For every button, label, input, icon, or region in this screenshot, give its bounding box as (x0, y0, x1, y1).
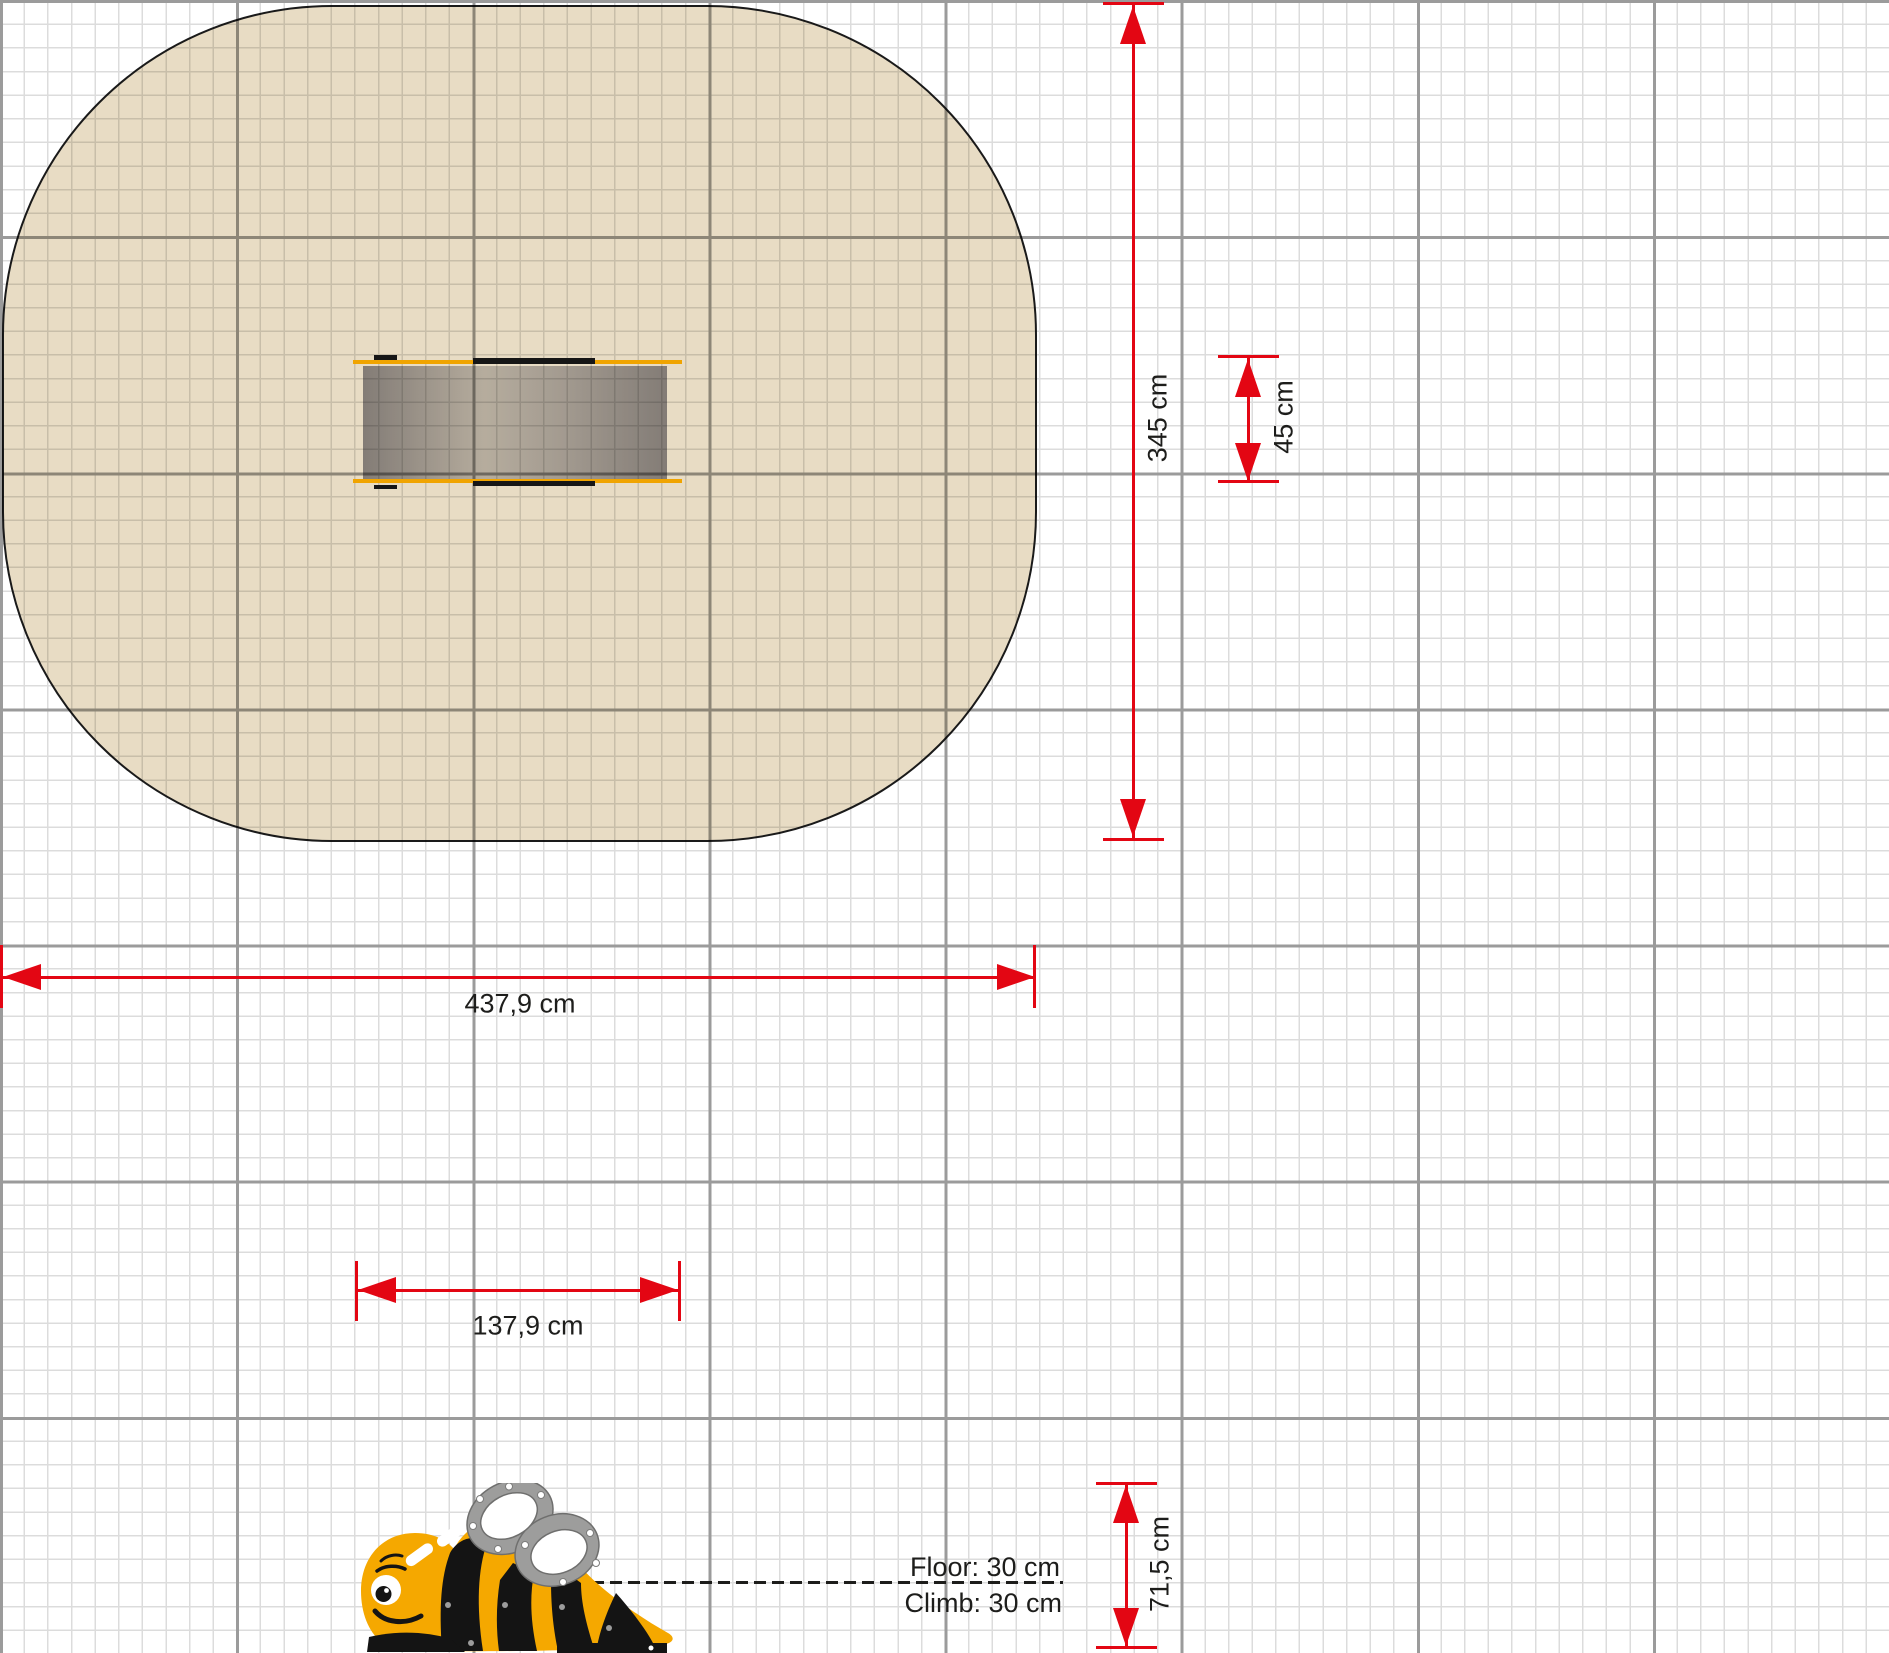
arrowhead-down-icon (1235, 443, 1261, 481)
technical-drawing-canvas: 345 cm 45 cm 437,9 cm 137,9 cm 71,5 cm (0, 0, 1889, 1653)
dimension-line (357, 1289, 679, 1292)
floor-annotation: Floor: 30 cm (860, 1552, 1060, 1583)
arrowhead-right-icon (997, 964, 1035, 990)
bee-bolt-light (649, 1646, 654, 1651)
arrowhead-up-icon (1235, 359, 1261, 397)
arrowhead-left-icon (358, 1277, 396, 1303)
equipment-tab-top (374, 355, 397, 360)
bee-eye-highlight (384, 1588, 389, 1593)
arrowhead-down-icon (1113, 1608, 1139, 1646)
dimension-label: 437,9 cm (464, 989, 575, 1020)
arrowhead-left-icon (3, 964, 41, 990)
dimension-tick (1218, 355, 1279, 358)
equipment-climb-mat (363, 366, 667, 479)
equipment-stripe-bottom (473, 481, 595, 486)
equipment-stripe-top (473, 358, 595, 364)
dimension-tick (1096, 1646, 1157, 1649)
arrowhead-down-icon (1120, 799, 1146, 837)
dimension-label: 45 cm (1269, 380, 1300, 454)
dimension-label: 71,5 cm (1145, 1516, 1176, 1612)
bee-climber-illustration (353, 1483, 679, 1653)
dimension-label: 345 cm (1143, 374, 1174, 463)
dimension-tick (1103, 838, 1164, 841)
climb-annotation: Climb: 30 cm (858, 1588, 1062, 1619)
dimension-tick (1103, 2, 1164, 5)
dimension-line (3, 976, 1035, 979)
arrowhead-up-icon (1113, 1485, 1139, 1523)
equipment-tab-bottom (374, 485, 397, 489)
bee-pupil (376, 1586, 392, 1602)
dimension-label: 137,9 cm (472, 1311, 583, 1342)
dimension-line (1132, 5, 1135, 840)
arrowhead-up-icon (1120, 6, 1146, 44)
arrowhead-right-icon (640, 1277, 678, 1303)
